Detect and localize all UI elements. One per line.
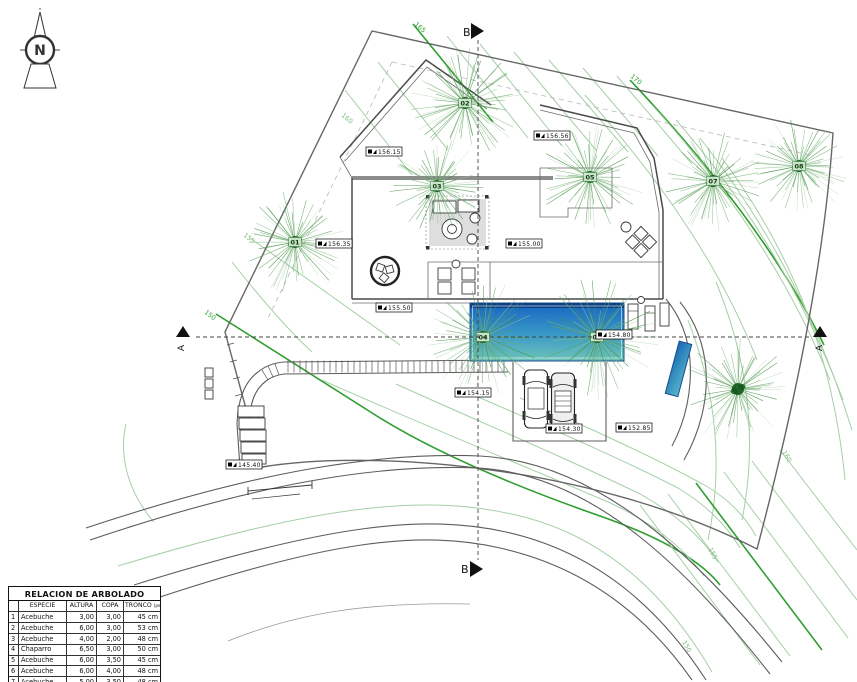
cell-tronco: 48 cm (124, 634, 160, 645)
elevation-value: 155.00 (518, 241, 541, 248)
table-row: 3Acebuche4,002,0048 cm (9, 634, 160, 645)
contour-label: 165 (413, 20, 428, 34)
cell-copa: 2,00 (97, 634, 124, 645)
tree-id: 07 (708, 178, 717, 186)
tree (687, 338, 785, 439)
cell-copa: 4,00 (97, 666, 124, 677)
cell-tronco: 50 cm (124, 645, 160, 656)
table-row: 6Acebuche6,004,0048 cm (9, 666, 160, 677)
contour-label: 150 (680, 639, 693, 654)
cell-num: 4 (9, 645, 19, 656)
section-label-b-bottom: B (461, 563, 469, 576)
cell-especie: Acebuche (19, 677, 67, 682)
cell-especie: Acebuche (19, 656, 67, 667)
contour-label: 150 (203, 308, 218, 322)
elevation-label: 156.15 (366, 147, 402, 156)
elevation-value: 156.56 (546, 133, 569, 140)
cell-tronco: 48 cm (124, 677, 160, 682)
diamond-seating (621, 222, 657, 258)
cell-altura: 6,00 (67, 656, 97, 667)
col-altura: ALTURA (67, 601, 97, 612)
cell-num: 5 (9, 656, 19, 667)
cell-especie: Chaparro (19, 645, 67, 656)
section-label-a-left: A (177, 344, 187, 351)
table-row: 5Acebuche6,003,5045 cm (9, 656, 160, 667)
col-num (9, 601, 19, 612)
cell-copa: 3,50 (97, 656, 124, 667)
water-feature (665, 341, 692, 397)
dining-set (438, 260, 475, 294)
cell-altura: 6,00 (67, 623, 97, 634)
tree-id: 03 (432, 183, 441, 191)
tree-id: 04 (478, 334, 488, 342)
contour-label: 170 (629, 72, 644, 86)
col-copa: COPA (97, 601, 124, 612)
street (86, 455, 782, 680)
cell-tronco: 48 cm (124, 666, 160, 677)
elevation-label: 155.50 (376, 303, 412, 312)
cell-num: 1 (9, 612, 19, 623)
elevation-value: 152.85 (628, 425, 651, 432)
north-compass: N (20, 8, 60, 88)
site-plan-page: 0102030405060708 A A B B 165170160155150… (0, 0, 857, 682)
section-label-b-top: B (463, 26, 471, 39)
tree-planter (540, 168, 612, 217)
tree-id: 02 (460, 100, 469, 108)
table-header: ESPECIE ALTURA COPA TRONCO (perimetro) (9, 601, 160, 612)
elevation-label: 154.80 (596, 330, 632, 339)
cell-num: 3 (9, 634, 19, 645)
cell-num: 7 (9, 677, 19, 682)
tree-id: 01 (290, 239, 300, 247)
elevation-value: 145.40 (238, 462, 261, 469)
elevation-value: 155.50 (388, 305, 411, 312)
cell-altura: 5,00 (67, 677, 97, 682)
cell-altura: 6,50 (67, 645, 97, 656)
cell-copa: 3,00 (97, 612, 124, 623)
elevation-value: 154.80 (608, 332, 631, 339)
tree-id: 05 (585, 174, 595, 182)
table-row: 4Chaparro6,503,0050 cm (9, 645, 160, 656)
site-plan-canvas: 0102030405060708 A A B B 165170160155150… (0, 0, 857, 682)
table-row: 7Acebuche5,003,5048 cm (9, 677, 160, 682)
elevation-label: 152.85 (616, 423, 652, 432)
car (523, 370, 550, 428)
tree-schedule-table: RELACION DE ARBOLADO ESPECIE ALTURA COPA… (8, 586, 161, 682)
cell-copa: 3,00 (97, 623, 124, 634)
cell-altura: 3,00 (67, 612, 97, 623)
round-sofa (371, 257, 399, 285)
cell-tronco: 45 cm (124, 612, 160, 623)
cell-altura: 6,00 (67, 666, 97, 677)
cell-tronco: 53 cm (124, 623, 160, 634)
elevation-value: 156.35 (328, 241, 351, 248)
col-especie: ESPECIE (19, 601, 67, 612)
scale-bar (248, 481, 312, 499)
patio (426, 195, 489, 250)
tree: 05 (546, 125, 642, 228)
compass-north-label: N (34, 43, 46, 59)
car (550, 373, 577, 431)
cell-tronco: 45 cm (124, 656, 160, 667)
col-tronco: TRONCO (perimetro) (124, 601, 160, 612)
contour-label: 160 (340, 111, 355, 125)
cell-especie: Acebuche (19, 634, 67, 645)
table-row: 2Acebuche6,003,0053 cm (9, 623, 160, 634)
table-title: RELACION DE ARBOLADO (9, 587, 160, 601)
cell-num: 2 (9, 623, 19, 634)
contour-label: 155 (242, 231, 257, 245)
entry-steps (205, 368, 266, 464)
contour-label: 160 (780, 449, 793, 464)
cell-num: 6 (9, 666, 19, 677)
loungers (628, 297, 669, 332)
elevation-label: 156.56 (534, 131, 570, 140)
table-row: 1Acebuche3,003,0045 cm (9, 612, 160, 623)
cell-especie: Acebuche (19, 666, 67, 677)
elevation-value: 154.15 (467, 390, 490, 397)
elevation-label: 154.15 (455, 388, 491, 397)
tree-id: 08 (794, 163, 804, 171)
cell-altura: 4,00 (67, 634, 97, 645)
tree: 02 (411, 47, 520, 151)
elevation-label: 155.00 (506, 239, 542, 248)
cell-copa: 3,50 (97, 677, 124, 682)
plot-boundary (225, 31, 833, 549)
cell-copa: 3,00 (97, 645, 124, 656)
cell-especie: Acebuche (19, 623, 67, 634)
elevation-value: 154.30 (558, 426, 581, 433)
section-label-a-right: A (815, 344, 825, 351)
cell-especie: Acebuche (19, 612, 67, 623)
elevation-label: 154.30 (546, 424, 582, 433)
elevation-value: 156.15 (378, 149, 401, 156)
elevation-label: 145.40 (226, 460, 262, 469)
elevation-label: 156.35 (316, 239, 352, 248)
